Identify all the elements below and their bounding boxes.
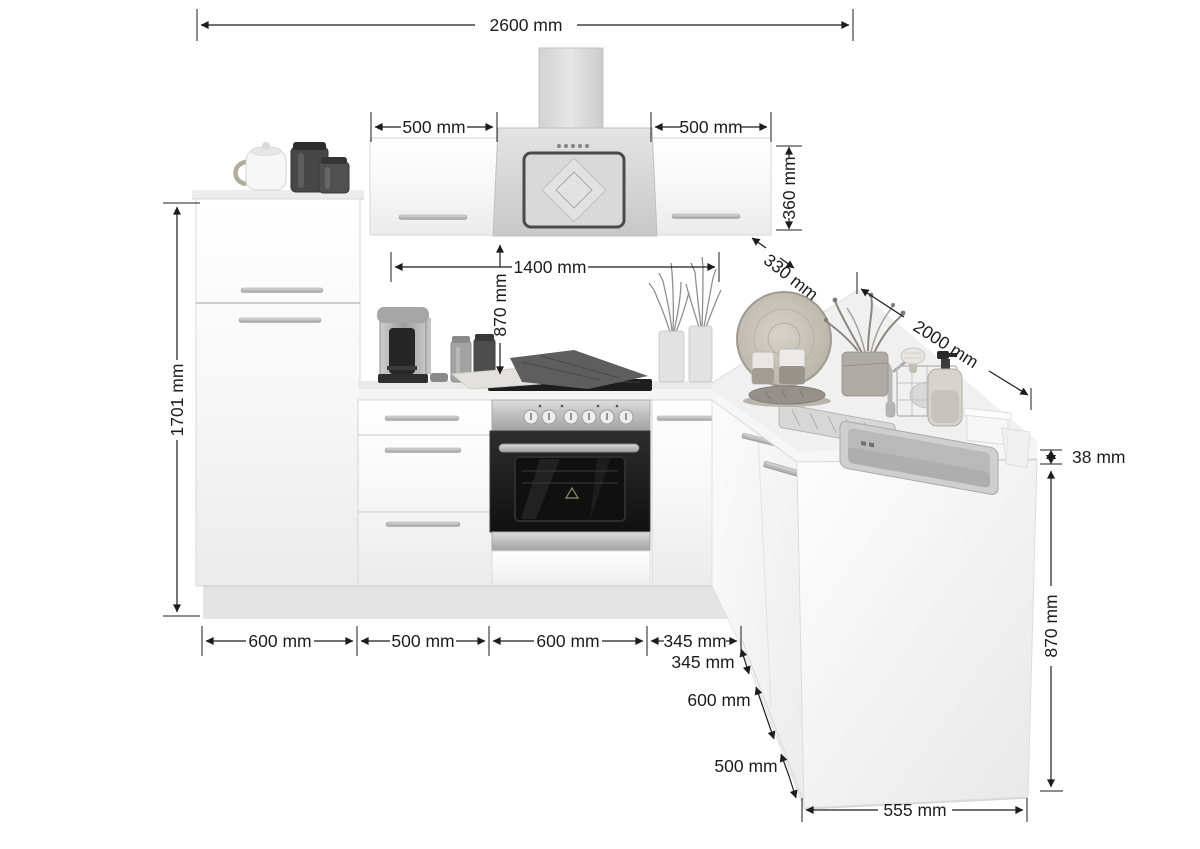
peninsula-end-panel (797, 460, 1037, 808)
dim-worktop-height: 870 mm (1040, 471, 1063, 791)
grass-vases (649, 257, 721, 382)
door-handle (399, 215, 467, 220)
dim-label-worktop-height: 870 mm (1041, 594, 1061, 657)
oven-bottom-drawer (492, 532, 650, 551)
peninsula-cabinet-fronts (712, 399, 804, 808)
dim-label-peninsula-segment-2: 600 mm (687, 690, 750, 710)
dim-tall-unit-height: 1701 mm (163, 203, 200, 616)
dim-base-run-segments: 600 mm 500 mm 600 mm 345 mm (202, 626, 741, 656)
drawer-handle (385, 448, 461, 453)
extractor-hood (493, 48, 657, 236)
drawer-base-unit (358, 400, 492, 586)
dim-label-right-wall-cabinet: 500 mm (679, 117, 742, 137)
dim-label-base-segment-2: 500 mm (391, 631, 454, 651)
dim-wall-cabinet-height: 360 mm (776, 146, 802, 230)
dim-label-base-segment-4: 345 mm (663, 631, 726, 651)
door-handle (241, 288, 323, 293)
wall-cabinet-left (370, 138, 498, 235)
drawer-handle (386, 522, 460, 527)
dim-label-niche-height: 870 mm (490, 273, 510, 336)
towel-on-edge (1002, 428, 1030, 468)
dim-label-peninsula-segment-3: 500 mm (714, 756, 777, 776)
dim-label-niche-width: 1400 mm (514, 257, 587, 277)
dim-label-tall-unit-height: 1701 mm (167, 364, 187, 437)
dim-worktop-thickness: 38 mm (1040, 447, 1125, 467)
dim-label-worktop-thickness: 38 mm (1072, 447, 1125, 467)
door-handle (672, 214, 740, 219)
diagram-canvas: 2600 mm 500 mm 500 mm 360 mm 330 mm 1400… (0, 0, 1200, 849)
dim-label-peninsula-end-width: 555 mm (883, 800, 946, 820)
coffee-capsule-dish (430, 373, 448, 382)
plinth (203, 586, 745, 619)
kitchen-dimension-diagram: 2600 mm 500 mm 500 mm 360 mm 330 mm 1400… (0, 0, 1200, 849)
oven-handle (499, 444, 639, 452)
dim-label-peninsula-segment-1: 345 mm (671, 652, 734, 672)
dim-label-left-wall-cabinet: 500 mm (402, 117, 465, 137)
dim-label-base-segment-1: 600 mm (248, 631, 311, 651)
hood-chimney (539, 48, 603, 129)
dim-niche-width: 1400 mm (391, 252, 719, 282)
dim-total-width: 2600 mm (197, 9, 853, 41)
jug (236, 142, 287, 190)
tall-unit-doors (196, 199, 360, 586)
door-handle (239, 318, 321, 323)
dim-label-total-width: 2600 mm (490, 15, 563, 35)
coffee-machine (377, 307, 431, 383)
storage-jars (291, 142, 349, 193)
oven (490, 400, 650, 586)
drawer-handle (385, 416, 459, 421)
dim-label-wall-cabinet-height: 360 mm (779, 156, 799, 219)
tall-cabinet-unit (192, 190, 364, 586)
cups (752, 349, 805, 384)
dim-label-base-segment-3: 600 mm (536, 631, 599, 651)
wall-cabinet-right (651, 138, 771, 235)
